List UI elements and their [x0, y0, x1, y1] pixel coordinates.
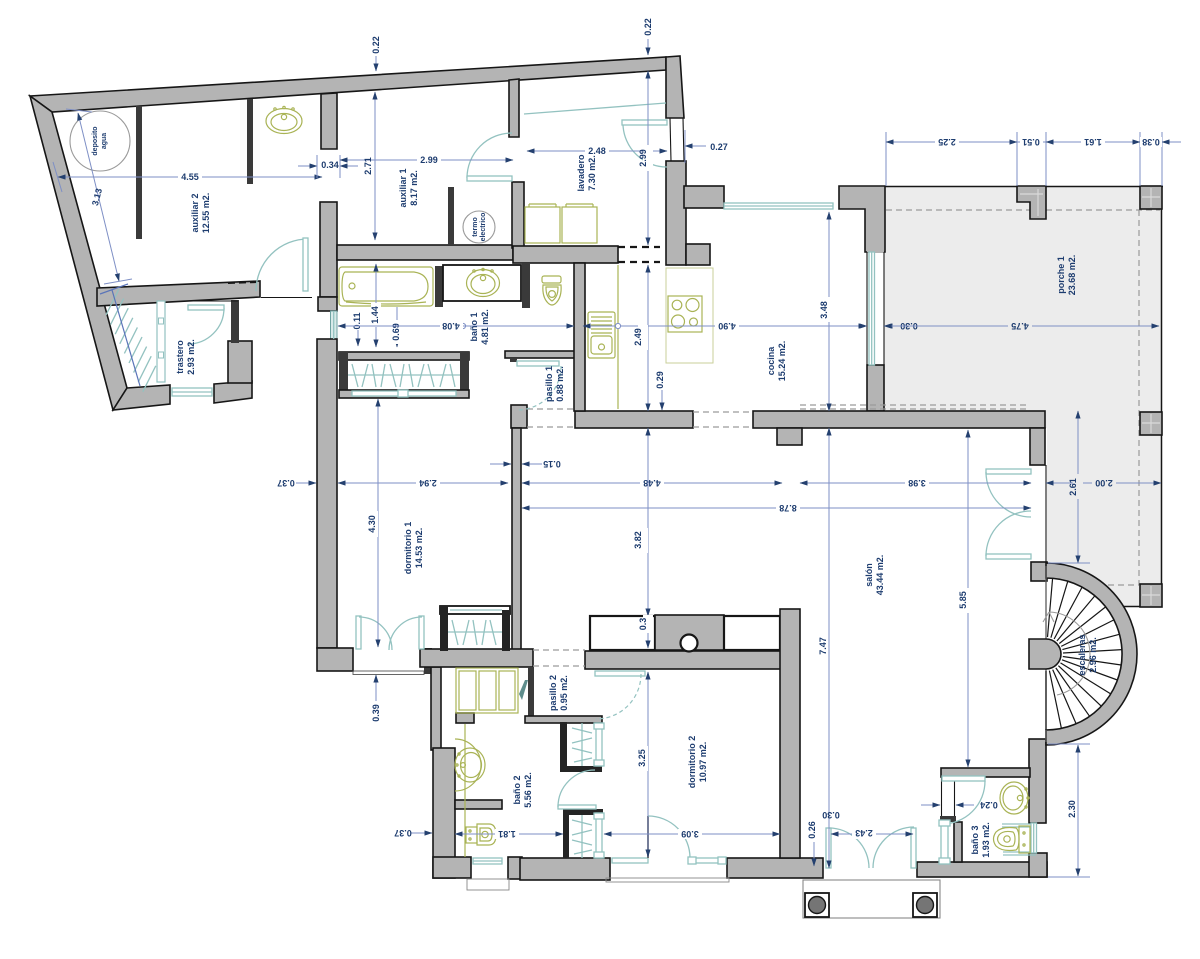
svg-text:4.75: 4.75 [1011, 321, 1029, 331]
svg-text:0.15: 0.15 [543, 459, 561, 469]
svg-text:cocina: cocina [766, 346, 776, 376]
svg-text:3.25: 3.25 [637, 749, 647, 767]
svg-text:4.55: 4.55 [181, 172, 199, 182]
svg-text:0.30: 0.30 [822, 810, 840, 820]
svg-text:deposito: deposito [92, 126, 99, 155]
svg-text:dormitorio 2: dormitorio 2 [687, 736, 697, 789]
svg-text:4.81 m2.: 4.81 m2. [480, 309, 490, 345]
svg-text:salón: salón [864, 563, 874, 587]
svg-text:0.22: 0.22 [371, 36, 381, 54]
svg-text:4.90: 4.90 [718, 321, 736, 331]
svg-text:agua: agua [101, 133, 108, 149]
svg-text:pasillo 2: pasillo 2 [548, 675, 558, 711]
svg-text:2.25: 2.25 [938, 137, 956, 147]
svg-text:2.96 m2.: 2.96 m2. [1088, 637, 1098, 673]
svg-text:4.30: 4.30 [367, 515, 377, 533]
svg-text:0.26: 0.26 [807, 821, 817, 839]
svg-text:0.38: 0.38 [1142, 137, 1160, 147]
svg-text:baño 3: baño 3 [970, 825, 980, 854]
svg-text:termo: termo [472, 217, 479, 236]
svg-text:electrico: electrico [480, 213, 487, 242]
svg-text:5.56 m2.: 5.56 m2. [523, 772, 533, 808]
svg-text:8.17 m2.: 8.17 m2. [409, 170, 419, 206]
svg-text:2.30: 2.30 [1067, 800, 1077, 818]
svg-text:2.94: 2.94 [419, 478, 437, 488]
svg-text:4.48: 4.48 [643, 478, 661, 488]
svg-text:1.93 m2.: 1.93 m2. [981, 822, 991, 858]
svg-text:auxiliar 1: auxiliar 1 [398, 168, 408, 207]
svg-text:7.30 m2.: 7.30 m2. [587, 155, 597, 191]
svg-text:1.61: 1.61 [1084, 137, 1102, 147]
svg-text:4.08: 4.08 [442, 321, 460, 331]
svg-text:23.68 m2.: 23.68 m2. [1067, 255, 1077, 296]
svg-text:2.61: 2.61 [1068, 478, 1078, 496]
svg-text:2.99: 2.99 [420, 155, 438, 165]
svg-text:14.53 m2.: 14.53 m2. [414, 528, 424, 569]
svg-text:7.47: 7.47 [818, 637, 828, 655]
svg-text:0.27: 0.27 [710, 142, 728, 152]
svg-text:0.22: 0.22 [643, 18, 653, 36]
svg-text:43.44 m2.: 43.44 m2. [875, 555, 885, 596]
svg-text:trastero: trastero [175, 340, 185, 374]
svg-text:2.43: 2.43 [855, 828, 873, 838]
svg-text:2.49: 2.49 [633, 328, 643, 346]
svg-text:12.55 m2.: 12.55 m2. [201, 193, 211, 234]
svg-text:0.88 m2.: 0.88 m2. [555, 366, 565, 402]
svg-text:dormitorio 1: dormitorio 1 [403, 522, 413, 575]
svg-text:escaleras: escaleras [1077, 634, 1087, 675]
svg-text:2.00: 2.00 [1095, 478, 1113, 488]
svg-text:pasillo 1: pasillo 1 [544, 366, 554, 402]
svg-text:0.24: 0.24 [980, 800, 998, 810]
svg-text:8.78: 8.78 [779, 503, 797, 513]
svg-text:0.37: 0.37 [277, 478, 295, 488]
svg-text:auxiliar 2: auxiliar 2 [190, 193, 200, 232]
svg-text:10.97 m2.: 10.97 m2. [698, 742, 708, 783]
svg-text:5.85: 5.85 [958, 591, 968, 609]
svg-text:porche 1: porche 1 [1056, 256, 1066, 294]
svg-text:0.51: 0.51 [1022, 137, 1040, 147]
svg-text:1.44: 1.44 [370, 306, 380, 324]
svg-text:3.82: 3.82 [633, 531, 643, 549]
svg-text:15.24 m2.: 15.24 m2. [777, 341, 787, 382]
svg-text:0.3: 0.3 [638, 618, 648, 631]
svg-text:1.81: 1.81 [498, 829, 516, 839]
svg-text:3.98: 3.98 [908, 478, 926, 488]
svg-text:2.48: 2.48 [588, 146, 606, 156]
svg-text:3.09: 3.09 [681, 829, 699, 839]
svg-text:2.93 m2.: 2.93 m2. [186, 339, 196, 375]
svg-text:lavadero: lavadero [576, 154, 586, 192]
svg-text:2.71: 2.71 [363, 157, 373, 175]
svg-text:0.29: 0.29 [655, 371, 665, 389]
svg-text:baño 1: baño 1 [469, 312, 479, 341]
svg-text:0.37: 0.37 [394, 828, 412, 838]
svg-text:0.95 m2.: 0.95 m2. [559, 675, 569, 711]
svg-text:2.99: 2.99 [638, 149, 648, 167]
svg-text:3.48: 3.48 [819, 301, 829, 319]
svg-text:baño 2: baño 2 [512, 775, 522, 804]
svg-text:0.39: 0.39 [371, 704, 381, 722]
svg-text:0.34: 0.34 [321, 160, 339, 170]
svg-text:0.11: 0.11 [352, 312, 362, 329]
